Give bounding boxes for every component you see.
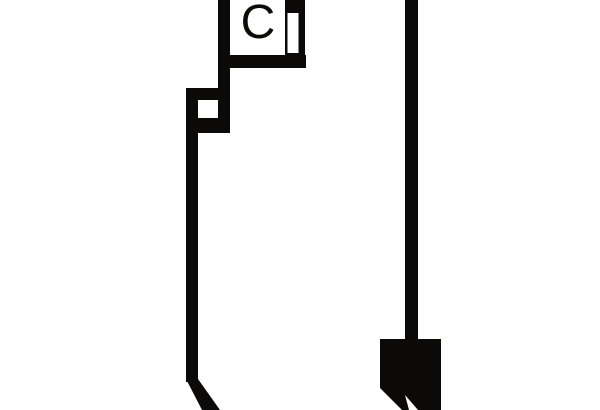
right-wall-slot (288, 13, 299, 53)
vertical-rod (405, 0, 418, 340)
line-art-figure: C (0, 0, 600, 410)
diagram-canvas: C (0, 0, 600, 410)
option-label: C (241, 0, 276, 49)
long-vertical-line (186, 88, 198, 382)
